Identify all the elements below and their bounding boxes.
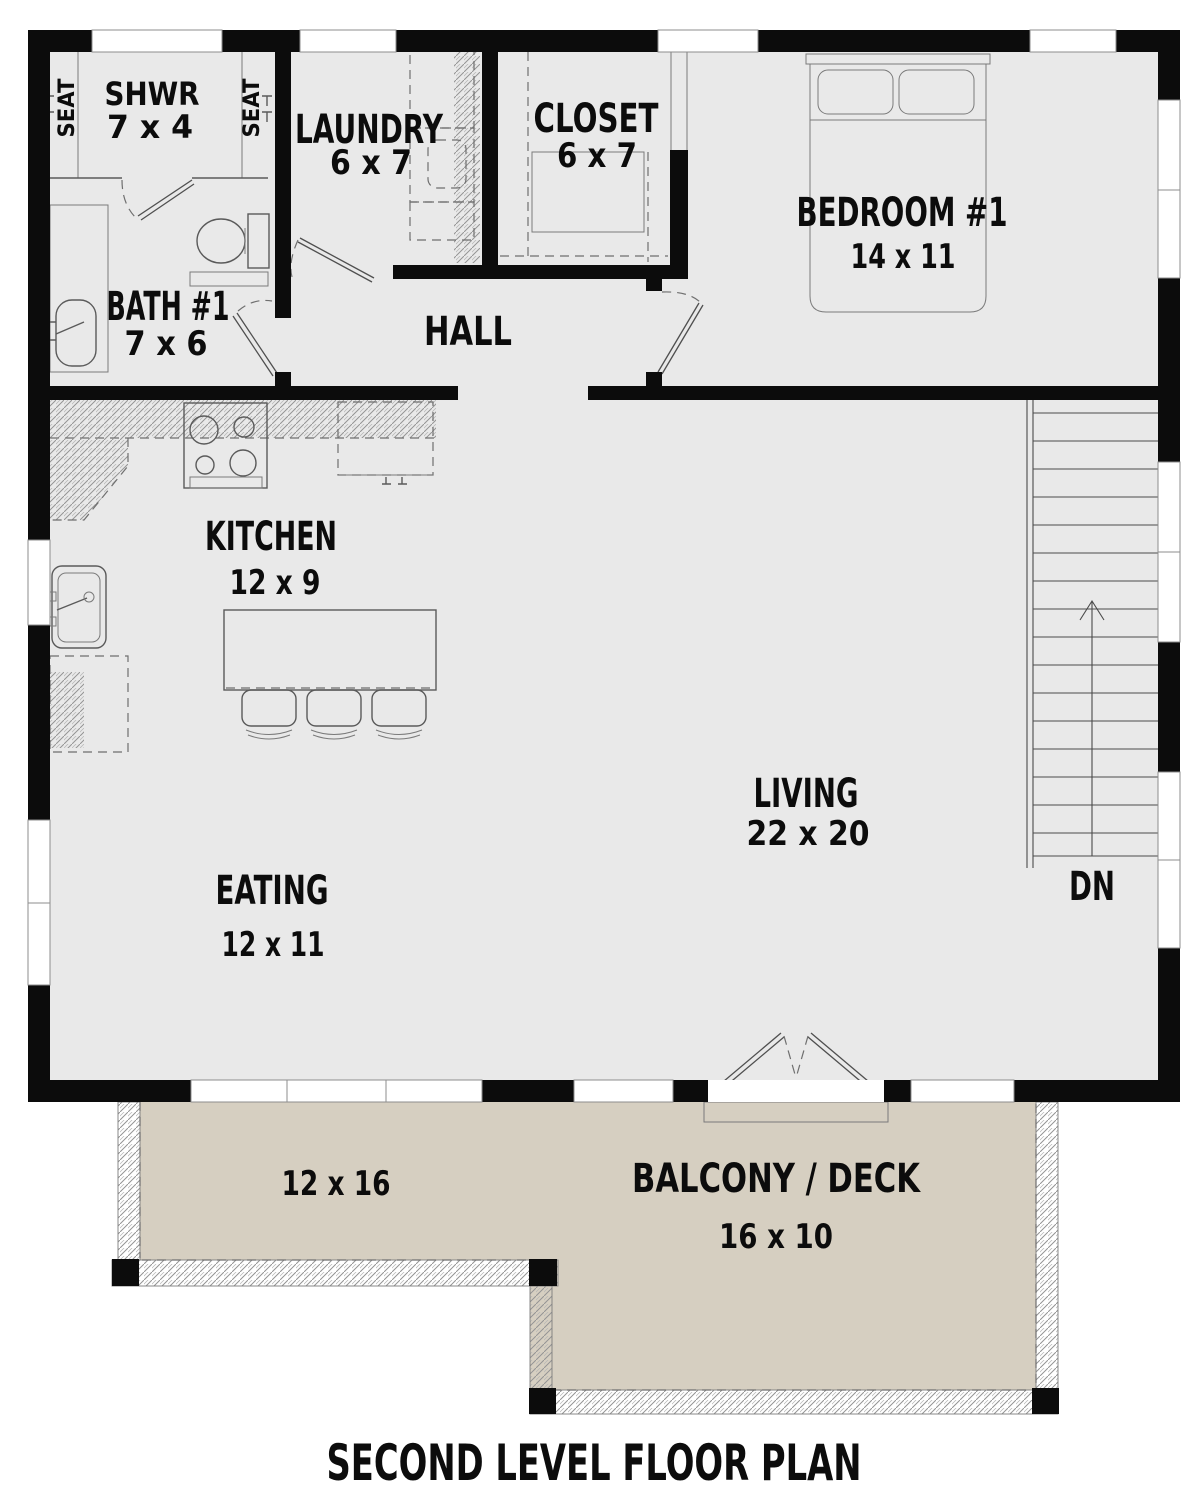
room-dims-eating: 12 x 11	[222, 925, 325, 965]
railing-post	[529, 1388, 556, 1414]
window	[1158, 100, 1180, 190]
wall-closet-jamb	[646, 279, 662, 291]
window	[1158, 552, 1180, 642]
room-label-balcony: BALCONY / DECK	[632, 1156, 922, 1202]
wall-laundry-closet	[482, 30, 498, 279]
wall-hall-south-left	[28, 386, 458, 400]
plan-title: SECOND LEVEL FLOOR PLAN	[327, 1434, 862, 1492]
wall-bedroom-door-jamb	[646, 372, 662, 386]
railing-post	[112, 1259, 139, 1286]
window	[300, 30, 396, 52]
window	[911, 1080, 1014, 1102]
wall-laundry-closet-south	[393, 265, 688, 279]
railing-left	[118, 1102, 140, 1260]
window	[28, 540, 50, 625]
counter-below-sink	[50, 672, 84, 748]
room-label-kitchen: KITCHEN	[205, 514, 337, 560]
wall-closet-east	[670, 150, 688, 279]
room-dims-closet: 6 x 7	[557, 136, 637, 176]
window	[386, 1080, 482, 1102]
window	[191, 1080, 287, 1102]
room-dims-balcony: 16 x 10	[719, 1217, 833, 1257]
window	[1158, 462, 1180, 552]
stairs-dn-label: DN	[1069, 864, 1115, 910]
wall-bath-laundry	[275, 30, 291, 318]
window	[28, 903, 50, 985]
room-dims-laundry: 6 x 7	[330, 143, 412, 183]
window	[287, 1080, 386, 1102]
balcony-floor	[140, 1102, 1036, 1390]
railing-right-bottom	[530, 1390, 1058, 1414]
room-dims-bath1: 7 x 6	[125, 324, 208, 364]
room-dims-kitchen: 12 x 9	[230, 563, 321, 603]
window	[1030, 30, 1116, 52]
window	[658, 30, 758, 52]
railing-post	[529, 1259, 557, 1286]
room-label-living: LIVING	[754, 771, 859, 817]
wall-living-north	[588, 386, 1158, 400]
railing-post	[1032, 1388, 1059, 1414]
room-dims-living: 22 x 20	[747, 814, 870, 854]
window	[28, 820, 50, 903]
window	[1158, 772, 1180, 860]
window	[1158, 190, 1180, 278]
room-label-bedroom1: BEDROOM #1	[797, 190, 1008, 236]
seat-label-right: SEAT	[240, 79, 265, 138]
balcony-left-dims: 12 x 16	[282, 1164, 391, 1204]
railing-right	[1036, 1102, 1058, 1390]
window	[1158, 860, 1180, 948]
window	[574, 1080, 673, 1102]
seat-label-left: SEAT	[55, 79, 80, 138]
floor-plan-drawing: SHWR 7 x 4 SEAT SEAT LAUNDRY 6 x 7 CLOSE…	[0, 0, 1200, 1493]
window	[92, 30, 222, 52]
room-dims-bedroom1: 14 x 11	[851, 237, 956, 277]
room-label-hall: HALL	[424, 309, 512, 355]
laundry-cabinet	[454, 50, 480, 263]
room-dims-shwr: 7 x 4	[107, 108, 193, 146]
railing-left-bottom	[112, 1260, 558, 1286]
floor-areas	[50, 52, 1158, 1390]
kitchen-counter-top	[50, 400, 436, 438]
balcony-door-opening	[708, 1080, 884, 1102]
room-label-eating: EATING	[216, 868, 329, 914]
floor-plan-page: SHWR 7 x 4 SEAT SEAT LAUNDRY 6 x 7 CLOSE…	[0, 0, 1200, 1493]
